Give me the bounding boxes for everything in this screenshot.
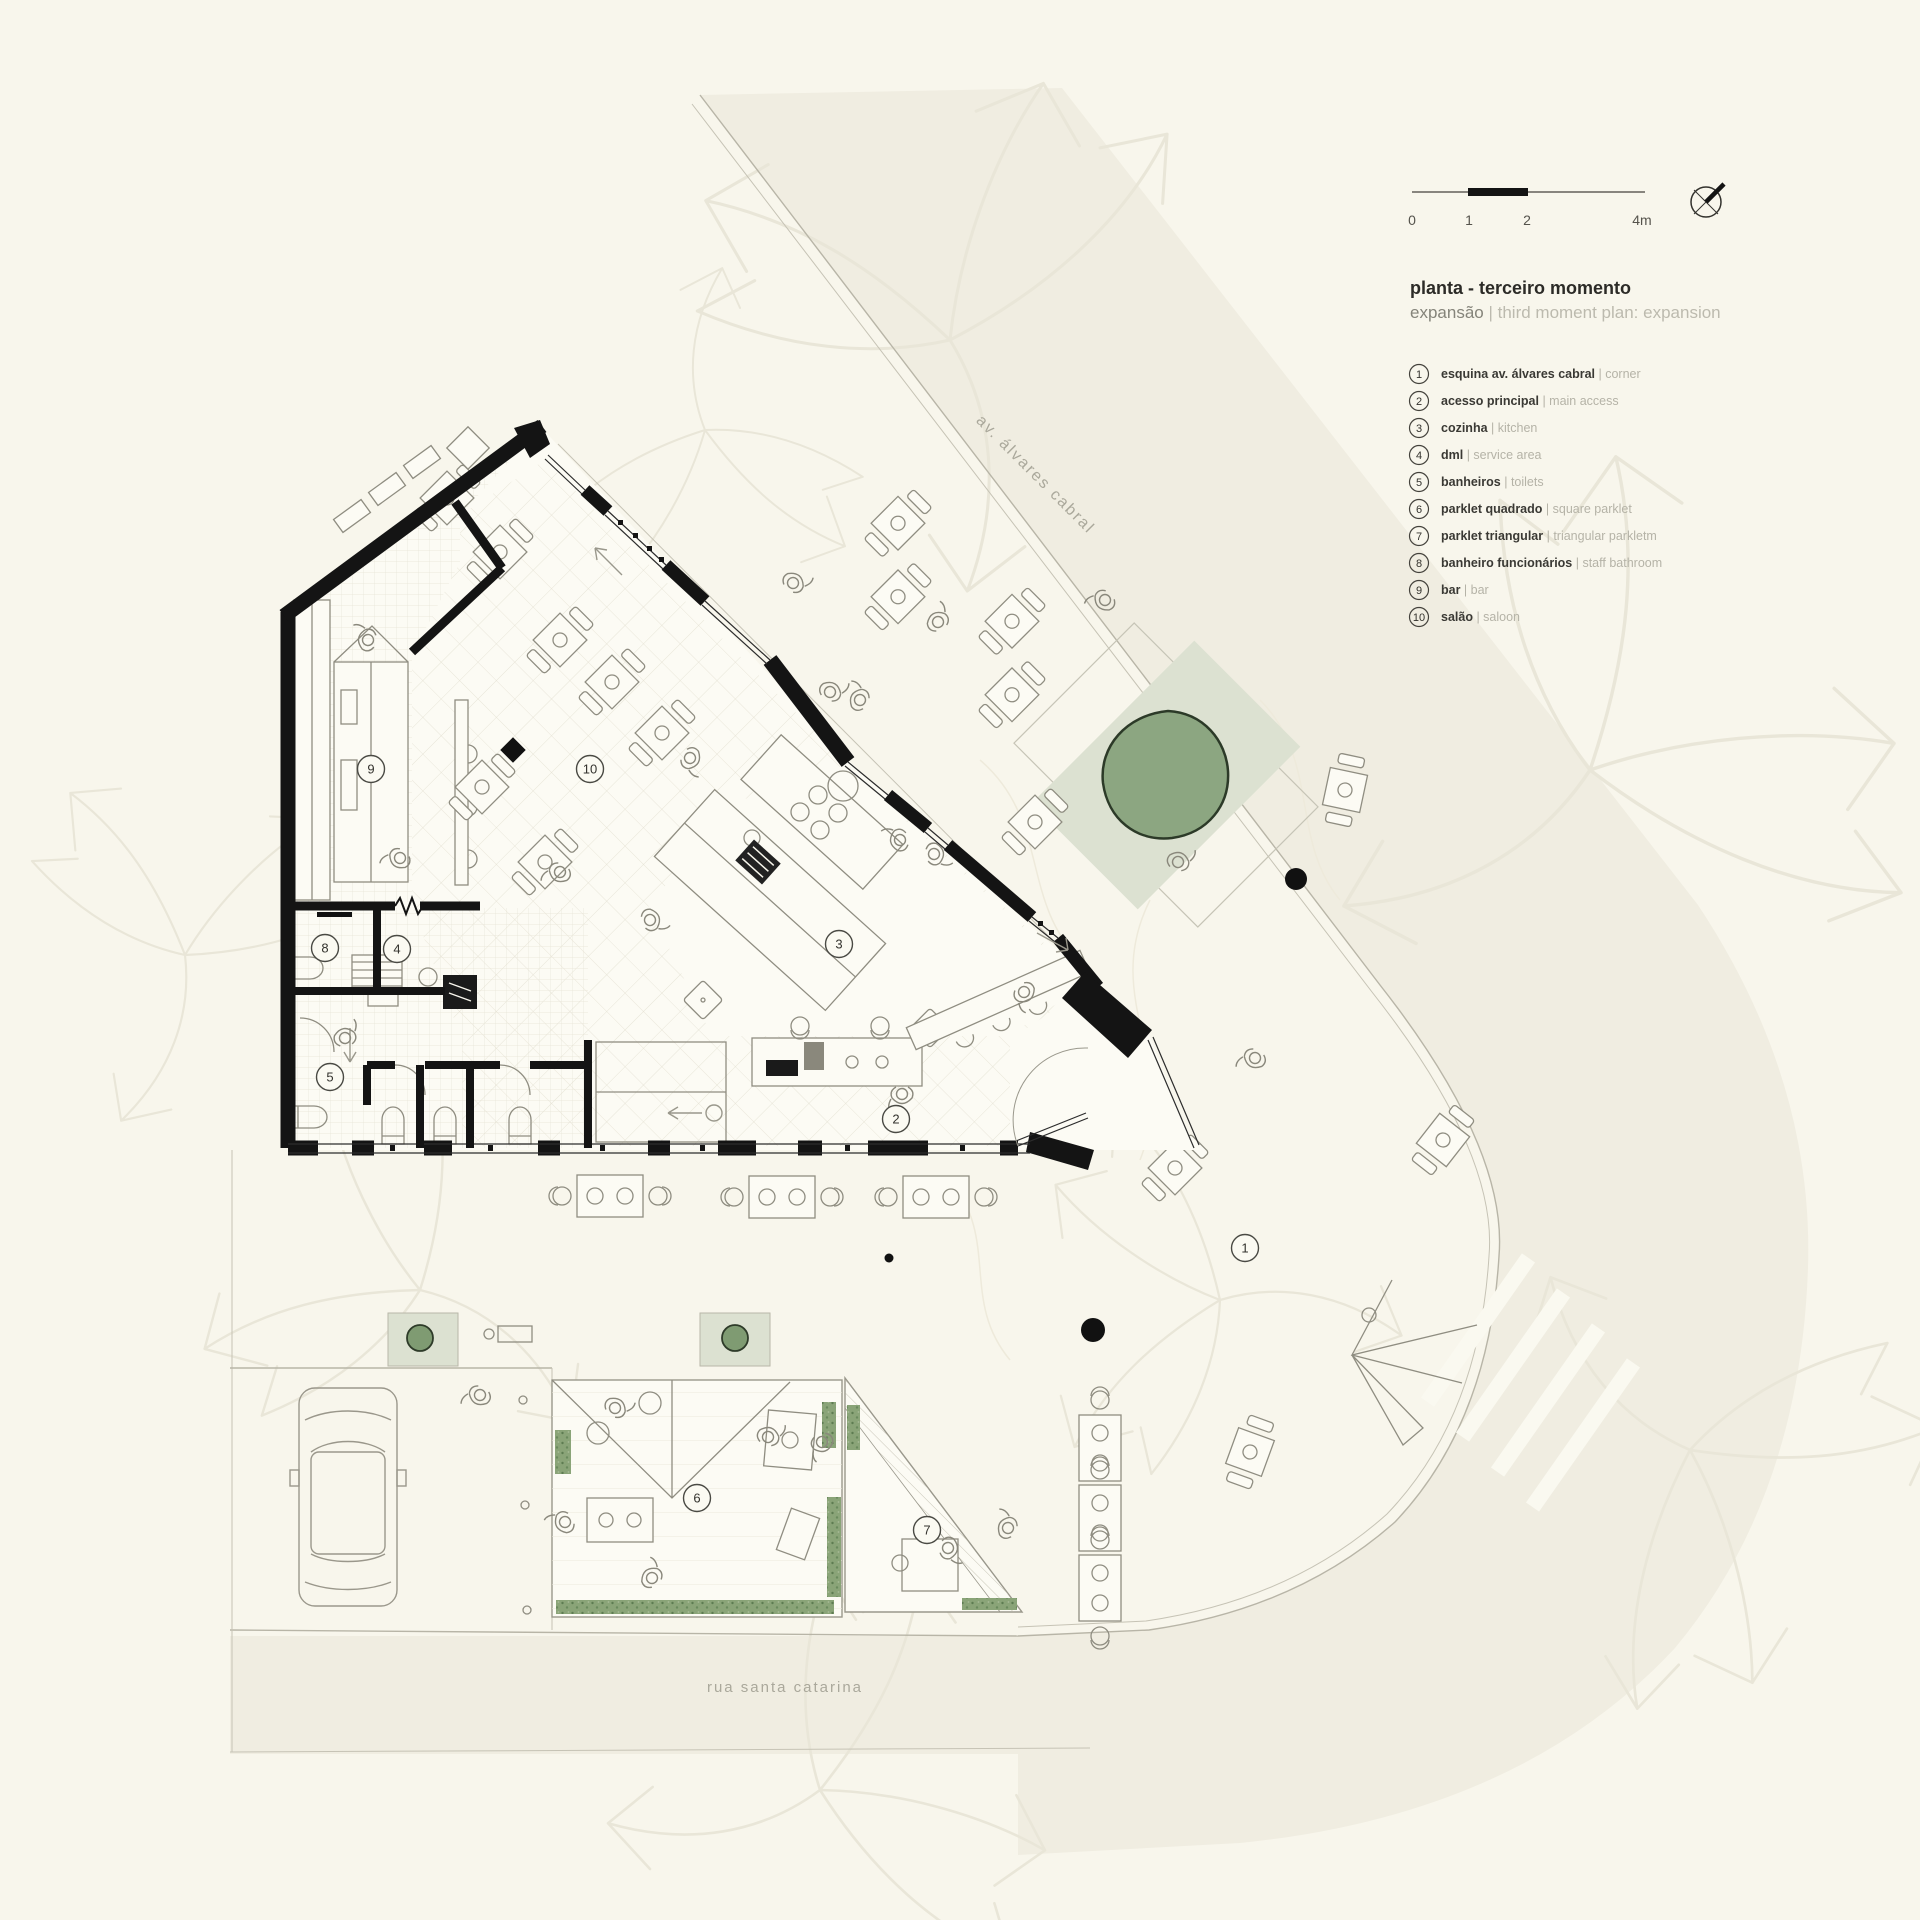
plan-marker-8: 8 (312, 935, 339, 962)
legend-item-8: 8banheiro funcionários | staff bathroom (1410, 554, 1663, 573)
svg-text:3: 3 (1416, 423, 1422, 435)
plan-marker-5: 5 (317, 1064, 344, 1091)
svg-text:3: 3 (835, 937, 842, 952)
street-label: rua santa catarina (707, 1679, 863, 1696)
svg-text:salão | saloon: salão | saloon (1441, 610, 1520, 624)
legend-item-7: 7parklet triangular | triangular parklet… (1410, 527, 1657, 546)
svg-text:10: 10 (1413, 612, 1425, 624)
plan-marker-10: 10 (577, 756, 604, 783)
svg-text:9: 9 (367, 762, 374, 777)
title-block: planta - terceiro momento expansão | thi… (1410, 278, 1721, 322)
svg-text:bar | bar: bar | bar (1441, 583, 1489, 597)
parklet-triangular (845, 1378, 1022, 1612)
svg-text:parklet quadrado | square park: parklet quadrado | square parklet (1441, 502, 1632, 516)
plan-marker-6: 6 (684, 1485, 711, 1512)
svg-text:6: 6 (1416, 504, 1422, 516)
plan-title: planta - terceiro momento (1410, 278, 1631, 298)
svg-text:1: 1 (1465, 212, 1473, 228)
planter-square-1 (388, 1313, 458, 1366)
svg-text:acesso principal | main access: acesso principal | main access (1441, 394, 1619, 408)
svg-text:1: 1 (1241, 1241, 1248, 1256)
parked-car (290, 1388, 406, 1606)
svg-text:4m: 4m (1632, 212, 1651, 228)
svg-text:8: 8 (1416, 558, 1422, 570)
plan-marker-9: 9 (358, 756, 385, 783)
svg-text:cozinha | kitchen: cozinha | kitchen (1441, 421, 1537, 435)
svg-text:2: 2 (1416, 396, 1422, 408)
plan-marker-3: 3 (826, 931, 853, 958)
svg-text:banheiro funcionários | staff: banheiro funcionários | staff bathroom (1441, 556, 1662, 570)
floor-plan-page: av. álvares cabral rua santa catarina 12… (0, 0, 1920, 1920)
plan-marker-4: 4 (384, 936, 411, 963)
svg-text:banheiros | toilets: banheiros | toilets (1441, 475, 1544, 489)
svg-text:4: 4 (1416, 450, 1422, 462)
svg-text:2: 2 (892, 1112, 899, 1127)
legend-item-6: 6parklet quadrado | square parklet (1410, 500, 1633, 519)
north-indicator-icon (1691, 184, 1724, 217)
svg-text:2: 2 (1523, 212, 1531, 228)
plan-marker-1: 1 (1232, 1235, 1259, 1262)
svg-text:7: 7 (923, 1523, 930, 1538)
svg-text:5: 5 (1416, 477, 1422, 489)
svg-text:5: 5 (326, 1070, 333, 1085)
plan-marker-2: 2 (883, 1106, 910, 1133)
svg-text:dml | service area: dml | service area (1441, 448, 1542, 462)
legend-item-5: 5banheiros | toilets (1410, 473, 1544, 492)
scale-bar: 0 1 2 4m (1408, 188, 1652, 228)
svg-text:parklet triangular | triangula: parklet triangular | triangular parkletm (1441, 529, 1657, 543)
svg-text:0: 0 (1408, 212, 1416, 228)
plan-subtitle: expansão | third moment plan: expansion (1410, 303, 1721, 322)
svg-text:esquina av. álvares cabral | c: esquina av. álvares cabral | corner (1441, 367, 1641, 381)
svg-text:4: 4 (393, 942, 400, 957)
svg-text:7: 7 (1416, 531, 1422, 543)
tree-canopy (1103, 711, 1229, 838)
plan-marker-7: 7 (914, 1517, 941, 1544)
svg-text:10: 10 (583, 762, 597, 777)
svg-text:8: 8 (321, 941, 328, 956)
svg-text:1: 1 (1416, 369, 1422, 381)
legend-item-2: 2acesso principal | main access (1410, 392, 1619, 411)
street-planters (388, 1313, 770, 1366)
floor-plan-canvas: av. álvares cabral rua santa catarina 12… (0, 0, 1920, 1920)
legend-item-3: 3cozinha | kitchen (1410, 419, 1538, 438)
svg-text:9: 9 (1416, 585, 1422, 597)
legend-item-1: 1esquina av. álvares cabral | corner (1410, 365, 1641, 384)
planter-square-2 (700, 1313, 770, 1366)
svg-text:6: 6 (693, 1491, 700, 1506)
legend-item-4: 4dml | service area (1410, 446, 1542, 465)
